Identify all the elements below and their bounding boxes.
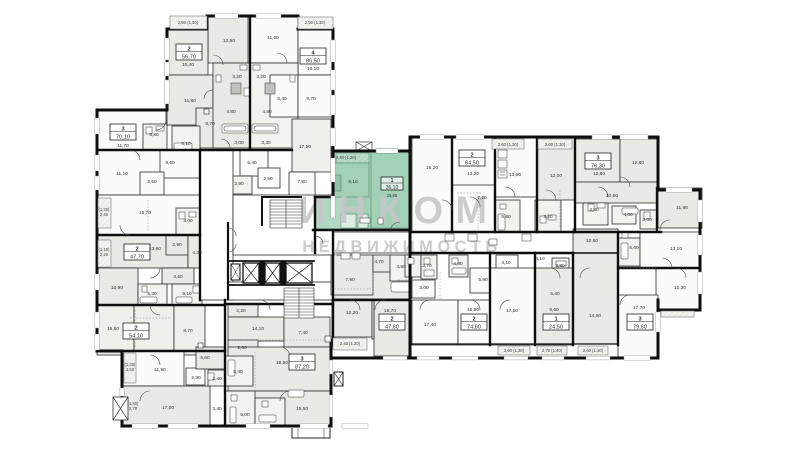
svg-text:7,20: 7,20 xyxy=(477,195,487,201)
svg-text:5,40: 5,40 xyxy=(550,291,560,297)
svg-text:5,80: 5,80 xyxy=(501,214,511,220)
svg-text:16,00: 16,00 xyxy=(387,193,398,198)
svg-text:16,70: 16,70 xyxy=(384,308,396,314)
svg-text:3,00: 3,00 xyxy=(183,218,193,224)
svg-text:2,70 (1,40): 2,70 (1,40) xyxy=(542,348,563,353)
svg-text:2,40 (1,20): 2,40 (1,20) xyxy=(340,341,361,346)
svg-text:4,50: 4,50 xyxy=(173,274,183,280)
svg-text:4,90: 4,90 xyxy=(453,261,463,267)
svg-text:9,60: 9,60 xyxy=(165,160,175,166)
svg-text:12,80: 12,80 xyxy=(593,171,605,177)
svg-text:2,40: 2,40 xyxy=(100,212,109,217)
svg-text:11,70: 11,70 xyxy=(117,143,129,149)
svg-text:4,10: 4,10 xyxy=(501,260,511,266)
svg-text:9,10: 9,10 xyxy=(348,179,358,185)
svg-text:5,10: 5,10 xyxy=(182,291,192,297)
svg-text:11,10: 11,10 xyxy=(116,171,128,177)
svg-text:2,20: 2,20 xyxy=(236,308,246,314)
svg-text:2,40 (1,20): 2,40 (1,20) xyxy=(336,155,357,160)
svg-text:79,60: 79,60 xyxy=(633,325,647,331)
svg-text:5,30: 5,30 xyxy=(147,291,157,297)
svg-text:8,70: 8,70 xyxy=(183,328,193,334)
svg-text:2: 2 xyxy=(187,47,190,53)
svg-text:11,60: 11,60 xyxy=(267,35,279,41)
svg-text:18,60: 18,60 xyxy=(276,360,288,366)
svg-text:17,70: 17,70 xyxy=(633,305,645,311)
svg-text:12,80: 12,80 xyxy=(632,160,644,166)
svg-text:5,80: 5,80 xyxy=(149,132,159,138)
svg-text:12,50: 12,50 xyxy=(223,38,235,44)
svg-text:2,50: 2,50 xyxy=(263,176,273,182)
svg-text:54,10: 54,10 xyxy=(129,334,143,340)
svg-text:3,20: 3,20 xyxy=(543,214,553,220)
svg-text:64,50: 64,50 xyxy=(465,161,479,167)
svg-text:2,60 (1,30): 2,60 (1,30) xyxy=(545,142,566,147)
svg-text:56,70: 56,70 xyxy=(182,55,196,61)
svg-text:4,80: 4,80 xyxy=(262,109,272,115)
svg-text:11,80: 11,80 xyxy=(184,98,196,104)
svg-text:3,20: 3,20 xyxy=(232,74,242,80)
svg-text:15,70: 15,70 xyxy=(139,210,151,216)
svg-text:5,90: 5,90 xyxy=(478,277,488,283)
svg-text:5,60: 5,60 xyxy=(629,245,639,251)
svg-text:2,50 (1,30): 2,50 (1,30) xyxy=(178,20,199,25)
svg-text:3,00: 3,00 xyxy=(642,217,652,223)
svg-text:74,60: 74,60 xyxy=(467,325,481,331)
svg-text:1: 1 xyxy=(554,317,557,323)
svg-text:5,40: 5,40 xyxy=(277,96,287,102)
svg-text:3,00: 3,00 xyxy=(419,285,429,291)
svg-text:3: 3 xyxy=(596,156,599,162)
svg-text:10,50: 10,50 xyxy=(606,193,618,199)
svg-text:5,60: 5,60 xyxy=(200,355,210,361)
svg-text:36,10: 36,10 xyxy=(386,185,399,191)
svg-text:10,10: 10,10 xyxy=(307,66,319,72)
svg-text:13,60: 13,60 xyxy=(149,246,161,252)
svg-text:47,60: 47,60 xyxy=(385,325,399,331)
svg-text:2,50: 2,50 xyxy=(126,367,135,372)
svg-text:13,60: 13,60 xyxy=(509,172,521,178)
svg-text:76,30: 76,30 xyxy=(591,164,605,170)
svg-text:4,80: 4,80 xyxy=(589,207,599,213)
svg-text:5,10: 5,10 xyxy=(181,141,191,147)
svg-text:2,90: 2,90 xyxy=(172,242,182,248)
svg-text:2,50 (1,30): 2,50 (1,30) xyxy=(305,20,326,25)
svg-text:12,00: 12,00 xyxy=(550,173,562,179)
svg-text:12,60: 12,60 xyxy=(586,238,598,244)
svg-text:2,50: 2,50 xyxy=(147,179,157,185)
svg-text:2,30: 2,30 xyxy=(191,375,201,381)
svg-text:15,50: 15,50 xyxy=(296,406,308,412)
svg-text:4,00: 4,00 xyxy=(623,212,633,218)
svg-text:7,40: 7,40 xyxy=(298,330,308,336)
svg-text:13,10: 13,10 xyxy=(670,246,682,252)
svg-text:9,60: 9,60 xyxy=(549,307,559,313)
svg-text:4,90: 4,90 xyxy=(396,264,406,270)
svg-text:12,20: 12,20 xyxy=(346,310,358,316)
svg-text:17,40: 17,40 xyxy=(424,322,436,328)
svg-text:47,70: 47,70 xyxy=(130,255,144,261)
svg-text:16,20: 16,20 xyxy=(426,165,438,171)
svg-text:10,40: 10,40 xyxy=(182,62,194,68)
svg-text:10,30: 10,30 xyxy=(674,285,686,291)
svg-text:2: 2 xyxy=(470,153,473,159)
svg-text:3,00: 3,00 xyxy=(234,140,244,146)
svg-text:11,90: 11,90 xyxy=(676,205,688,211)
svg-text:17,00: 17,00 xyxy=(162,405,174,411)
svg-text:2,20: 2,20 xyxy=(100,252,109,257)
svg-text:3,40: 3,40 xyxy=(212,406,222,412)
svg-text:10,90: 10,90 xyxy=(111,285,123,291)
svg-text:16,50: 16,50 xyxy=(107,326,119,332)
svg-text:4,30: 4,30 xyxy=(192,250,202,256)
svg-text:9,70: 9,70 xyxy=(306,96,316,102)
svg-text:14,10: 14,10 xyxy=(252,326,264,332)
svg-text:17,50: 17,50 xyxy=(299,144,311,150)
svg-text:7,90: 7,90 xyxy=(345,277,355,283)
svg-text:3: 3 xyxy=(638,317,641,323)
svg-text:7,80: 7,80 xyxy=(297,179,307,185)
svg-text:3: 3 xyxy=(121,127,124,133)
svg-text:2,60 (1,30): 2,60 (1,30) xyxy=(504,348,525,353)
svg-text:2,60 (1,30): 2,60 (1,30) xyxy=(498,142,519,147)
svg-text:5,40: 5,40 xyxy=(233,369,243,375)
svg-text:9,70: 9,70 xyxy=(205,121,215,127)
svg-text:4,70: 4,70 xyxy=(374,259,384,265)
svg-text:3,80: 3,80 xyxy=(555,263,565,269)
svg-text:2,60: 2,60 xyxy=(237,345,247,351)
svg-text:13,20: 13,20 xyxy=(467,171,479,177)
svg-text:3,30: 3,30 xyxy=(261,140,271,146)
svg-text:5,40: 5,40 xyxy=(247,160,257,166)
svg-text:2: 2 xyxy=(135,247,138,253)
svg-text:87,20: 87,20 xyxy=(295,365,309,371)
svg-text:1: 1 xyxy=(391,178,394,184)
svg-text:24,50: 24,50 xyxy=(549,325,563,331)
svg-text:5,00: 5,00 xyxy=(240,412,250,418)
svg-text:86,50: 86,50 xyxy=(306,59,320,65)
svg-text:4,10: 4,10 xyxy=(535,256,545,262)
svg-text:16,80: 16,80 xyxy=(467,307,479,313)
svg-text:2: 2 xyxy=(390,317,393,323)
svg-text:3,90: 3,90 xyxy=(234,181,244,187)
svg-text:2,40: 2,40 xyxy=(212,376,222,382)
svg-text:3: 3 xyxy=(300,357,303,363)
svg-text:14,90: 14,90 xyxy=(589,313,601,319)
svg-text:70,10: 70,10 xyxy=(116,135,130,141)
svg-text:4,80: 4,80 xyxy=(226,109,236,115)
svg-text:3,20: 3,20 xyxy=(256,74,266,80)
svg-text:2,60 (1,30): 2,60 (1,30) xyxy=(583,348,604,353)
svg-text:3,70: 3,70 xyxy=(422,263,432,269)
svg-text:17,50: 17,50 xyxy=(506,308,518,314)
svg-text:2: 2 xyxy=(472,317,475,323)
svg-text:11,90: 11,90 xyxy=(154,367,166,373)
svg-text:2,70: 2,70 xyxy=(129,406,138,411)
